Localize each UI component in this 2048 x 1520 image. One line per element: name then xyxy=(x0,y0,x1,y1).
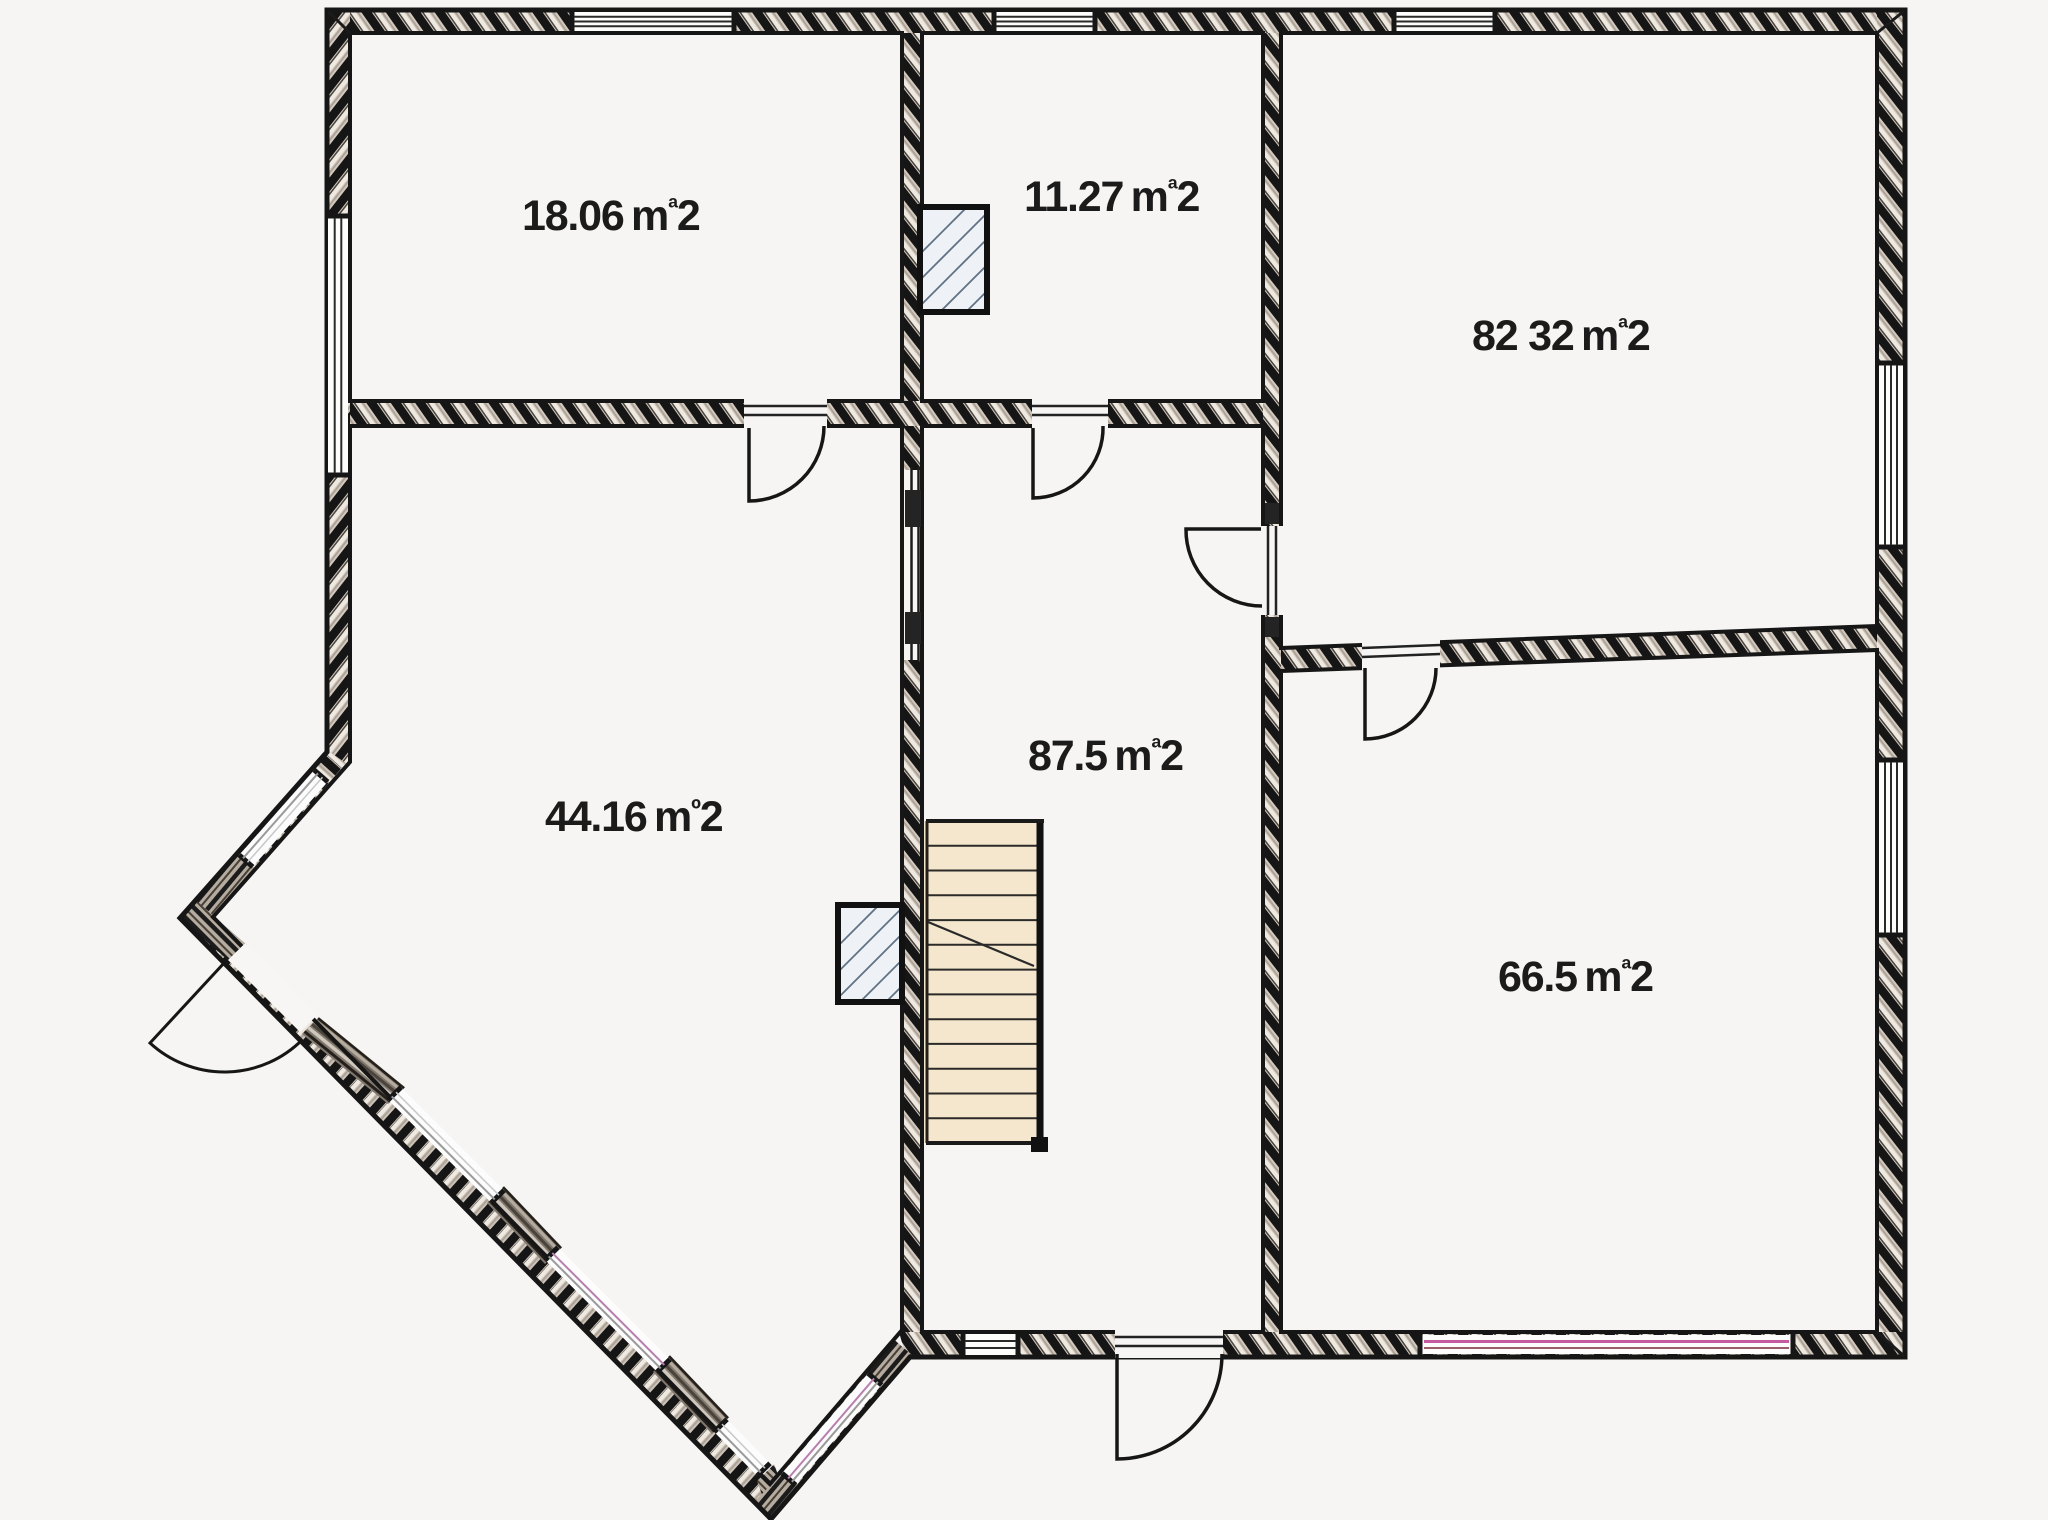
svg-text:87.5 mª2: 87.5 mª2 xyxy=(1028,732,1183,780)
svg-text:66.5 mª2: 66.5 mª2 xyxy=(1498,953,1653,1001)
